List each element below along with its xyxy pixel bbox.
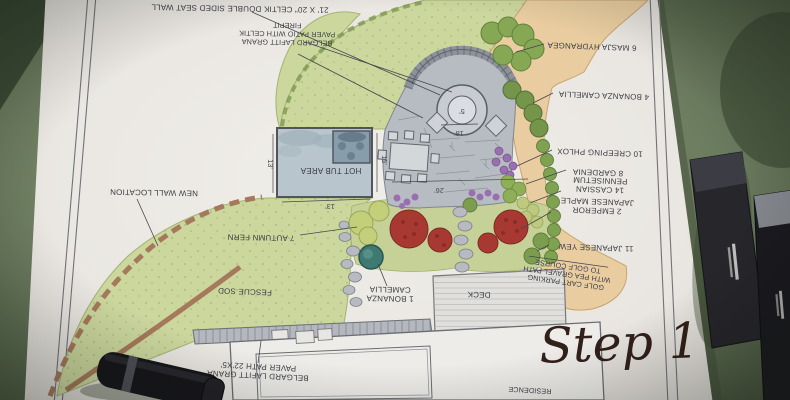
photo-of-landscape-plan: 21' X 20" CELTIK DOUBLE SIDED SEAT WALL … (0, 0, 790, 400)
landscape-plan-photo: 21' X 20" CELTIK DOUBLE SIDED SEAT WALL … (0, 0, 790, 400)
vignette (0, 0, 790, 400)
